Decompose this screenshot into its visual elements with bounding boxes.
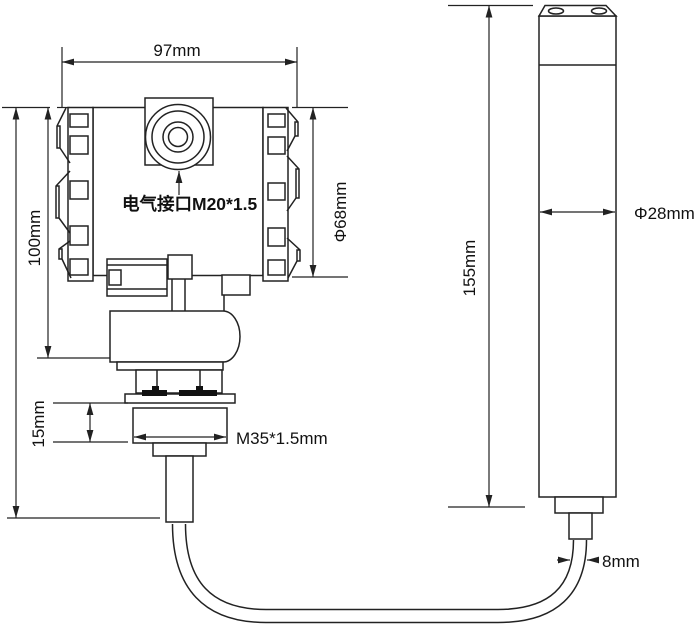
dim-155mm-label: 155mm xyxy=(460,240,479,297)
process-boss xyxy=(110,311,240,362)
housing-left-cap xyxy=(56,108,93,282)
dim-155mm: 155mm xyxy=(448,6,533,508)
thread-nut xyxy=(133,408,227,443)
nut-collar xyxy=(153,443,206,456)
housing-right-cap xyxy=(263,108,300,282)
transmitter-housing xyxy=(56,98,300,522)
flange xyxy=(136,370,222,393)
probe-cable-nipple xyxy=(569,513,592,539)
dim-100mm-label: 100mm xyxy=(25,210,44,267)
housing-bottom-assembly xyxy=(107,255,250,522)
level-probe xyxy=(539,6,616,540)
side-plug xyxy=(222,275,250,295)
cable-gland-pipe xyxy=(166,456,193,522)
dim-100mm: 100mm xyxy=(25,108,48,359)
probe-bottom-step xyxy=(555,497,603,513)
connection-cable xyxy=(179,524,580,616)
dim-8mm-label: 8mm xyxy=(602,552,640,571)
dimension-drawing: 97mm 100mm 15mm Φ68mm 电气接口M20*1.5 M35*1. xyxy=(0,0,700,629)
drawing-canvas: 97mm 100mm 15mm Φ68mm 电气接口M20*1.5 M35*1. xyxy=(0,0,700,629)
electrical-port-label: 电气接口M20*1.5 xyxy=(122,194,257,214)
dim-97mm-label: 97mm xyxy=(153,41,200,60)
dim-m35-label: M35*1.5mm xyxy=(236,429,328,448)
dim-15mm: 15mm xyxy=(29,400,128,447)
dim-15mm-label: 15mm xyxy=(29,400,48,447)
dim-28mm-label: Φ28mm xyxy=(634,204,695,223)
boss-step xyxy=(117,362,223,370)
probe-top-face xyxy=(539,6,616,17)
junction-block xyxy=(168,255,192,279)
probe-body xyxy=(539,16,616,497)
dim-68mm-label: Φ68mm xyxy=(331,182,350,243)
electrical-port-rings xyxy=(146,105,211,170)
dim-97mm: 97mm xyxy=(62,41,297,107)
